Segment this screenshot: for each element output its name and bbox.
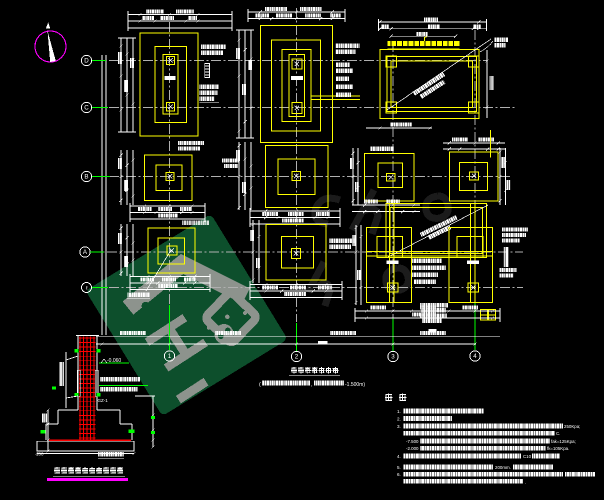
- svg-text:1: 1: [168, 353, 172, 360]
- svg-text:4: 4: [473, 353, 477, 360]
- svg-text:C: C: [84, 105, 89, 112]
- svg-text:C10: C10: [523, 454, 532, 459]
- svg-text:.: .: [525, 479, 526, 484]
- svg-text:-7.500: -7.500: [406, 439, 419, 444]
- svg-text:GZ-1: GZ-1: [98, 398, 109, 403]
- svg-text:250Kpa;: 250Kpa;: [564, 424, 580, 429]
- svg-text:100: 100: [36, 452, 44, 457]
- svg-text:3: 3: [391, 354, 395, 361]
- svg-text:-0.060: -0.060: [107, 358, 121, 364]
- svg-text:B: B: [84, 174, 88, 181]
- svg-text:-2.000: -2.000: [406, 446, 419, 451]
- svg-text:4.: 4.: [397, 454, 401, 459]
- svg-text:-1.500m): -1.500m): [345, 382, 365, 388]
- svg-text:fak=125Kpa;: fak=125Kpa;: [551, 439, 576, 444]
- svg-text:D: D: [84, 58, 89, 65]
- svg-text:5.: 5.: [397, 465, 401, 470]
- svg-text:1.: 1.: [397, 409, 401, 414]
- svg-text:(: (: [259, 382, 261, 388]
- svg-text:3.: 3.: [397, 424, 401, 429]
- svg-text:2.: 2.: [397, 417, 401, 422]
- svg-text:C.: C.: [556, 431, 560, 436]
- svg-text:fk=105Kpa.: fk=105Kpa.: [547, 446, 569, 451]
- svg-text:2: 2: [295, 354, 299, 361]
- svg-text:200mm.: 200mm.: [495, 465, 511, 470]
- svg-text:6.: 6.: [397, 472, 401, 477]
